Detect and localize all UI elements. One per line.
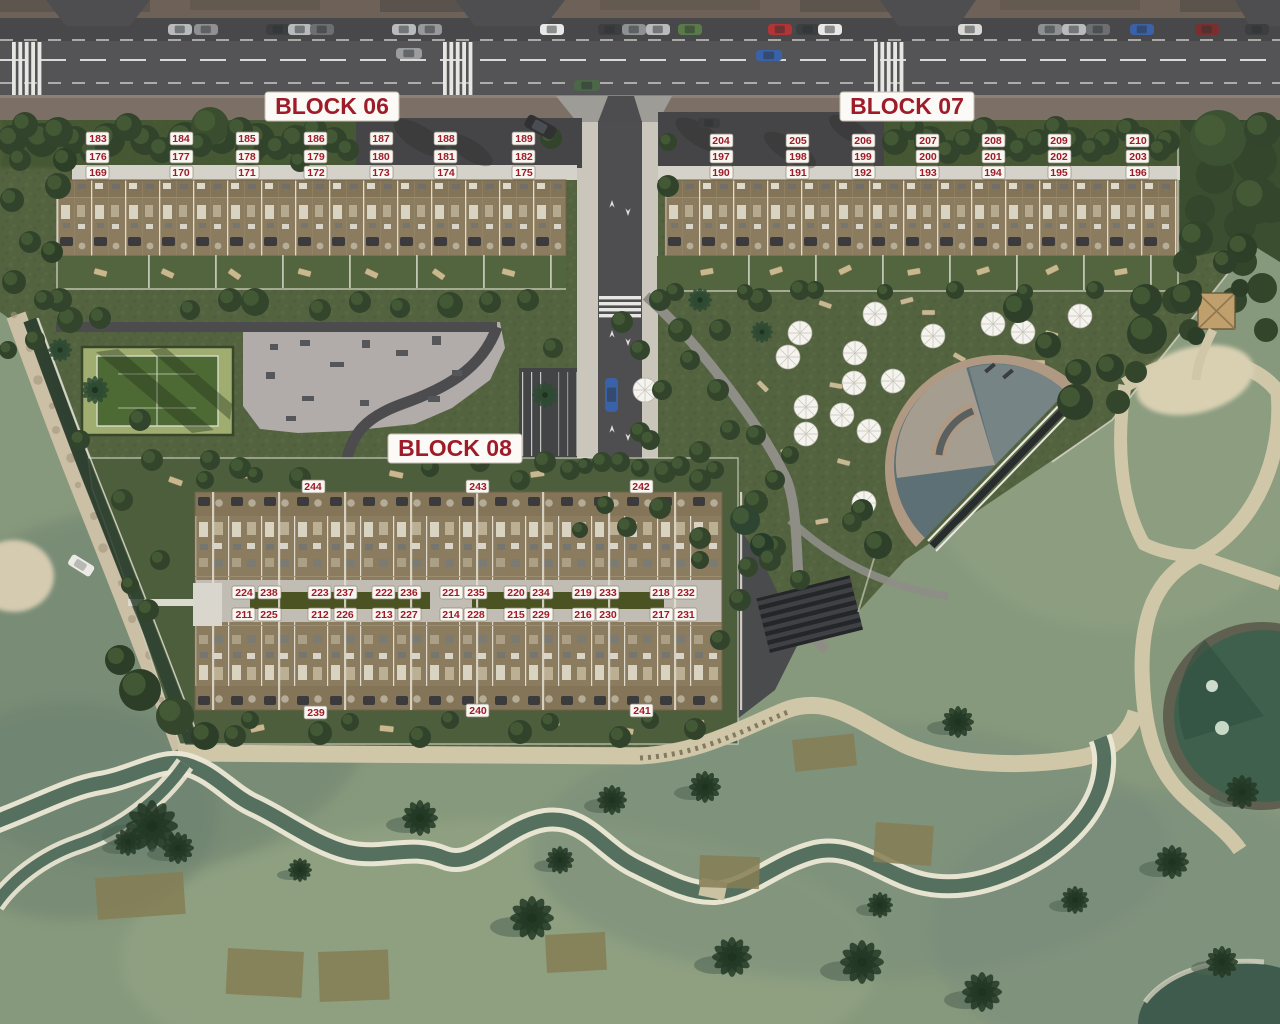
svg-text:205: 205 <box>789 135 807 147</box>
svg-text:174: 174 <box>437 167 455 179</box>
svg-text:204: 204 <box>712 135 730 147</box>
svg-text:176: 176 <box>89 151 107 163</box>
svg-text:216: 216 <box>574 609 592 621</box>
svg-text:242: 242 <box>632 481 650 493</box>
svg-text:180: 180 <box>372 151 390 163</box>
svg-text:231: 231 <box>677 609 695 621</box>
svg-text:211: 211 <box>236 609 253 621</box>
svg-text:221: 221 <box>442 587 460 599</box>
svg-text:213: 213 <box>375 609 393 621</box>
svg-text:209: 209 <box>1050 135 1068 147</box>
svg-text:220: 220 <box>507 587 525 599</box>
svg-text:223: 223 <box>311 587 329 599</box>
svg-text:224: 224 <box>235 587 253 599</box>
svg-text:177: 177 <box>172 151 190 163</box>
svg-text:200: 200 <box>919 151 937 163</box>
svg-text:201: 201 <box>984 151 1002 163</box>
svg-text:188: 188 <box>437 133 455 145</box>
svg-text:BLOCK 07: BLOCK 07 <box>850 93 964 119</box>
svg-text:178: 178 <box>238 151 256 163</box>
svg-text:236: 236 <box>400 587 418 599</box>
svg-text:199: 199 <box>854 151 872 163</box>
svg-text:237: 237 <box>336 587 354 599</box>
svg-text:202: 202 <box>1050 151 1068 163</box>
svg-text:232: 232 <box>677 587 695 599</box>
svg-text:184: 184 <box>172 133 190 145</box>
svg-text:181: 181 <box>437 151 455 163</box>
svg-text:203: 203 <box>1129 151 1147 163</box>
svg-text:210: 210 <box>1129 135 1147 147</box>
svg-text:239: 239 <box>307 707 325 719</box>
svg-text:244: 244 <box>304 481 322 493</box>
svg-text:228: 228 <box>467 609 485 621</box>
svg-text:194: 194 <box>984 167 1002 179</box>
svg-text:195: 195 <box>1050 167 1068 179</box>
svg-text:175: 175 <box>515 167 533 179</box>
svg-text:234: 234 <box>532 587 550 599</box>
svg-text:212: 212 <box>311 609 329 621</box>
svg-text:230: 230 <box>599 609 617 621</box>
svg-text:241: 241 <box>633 705 651 717</box>
svg-text:173: 173 <box>372 167 390 179</box>
svg-text:227: 227 <box>400 609 418 621</box>
svg-text:208: 208 <box>984 135 1002 147</box>
svg-text:222: 222 <box>375 587 393 599</box>
svg-text:225: 225 <box>260 609 278 621</box>
svg-text:179: 179 <box>307 151 325 163</box>
svg-text:172: 172 <box>307 167 325 179</box>
svg-text:190: 190 <box>712 167 730 179</box>
svg-text:243: 243 <box>469 481 487 493</box>
svg-text:BLOCK 08: BLOCK 08 <box>398 435 512 461</box>
svg-text:189: 189 <box>515 133 533 145</box>
svg-text:207: 207 <box>919 135 937 147</box>
svg-text:191: 191 <box>789 167 807 179</box>
svg-text:215: 215 <box>507 609 525 621</box>
svg-text:235: 235 <box>467 587 485 599</box>
svg-text:185: 185 <box>238 133 256 145</box>
svg-text:226: 226 <box>336 609 354 621</box>
svg-text:238: 238 <box>260 587 278 599</box>
svg-text:240: 240 <box>469 705 487 717</box>
svg-text:171: 171 <box>238 167 256 179</box>
svg-text:187: 187 <box>372 133 390 145</box>
svg-text:192: 192 <box>854 167 872 179</box>
svg-text:206: 206 <box>854 135 872 147</box>
svg-text:182: 182 <box>515 151 533 163</box>
svg-text:186: 186 <box>307 133 325 145</box>
svg-text:197: 197 <box>712 151 730 163</box>
svg-text:183: 183 <box>89 133 107 145</box>
svg-text:169: 169 <box>89 167 107 179</box>
svg-text:219: 219 <box>574 587 592 599</box>
svg-text:214: 214 <box>442 609 460 621</box>
svg-text:218: 218 <box>652 587 670 599</box>
svg-text:170: 170 <box>172 167 190 179</box>
svg-text:229: 229 <box>532 609 550 621</box>
svg-text:BLOCK 06: BLOCK 06 <box>275 93 389 119</box>
svg-text:193: 193 <box>919 167 937 179</box>
svg-text:233: 233 <box>599 587 617 599</box>
svg-text:196: 196 <box>1129 167 1147 179</box>
svg-text:198: 198 <box>789 151 807 163</box>
svg-text:217: 217 <box>652 609 670 621</box>
